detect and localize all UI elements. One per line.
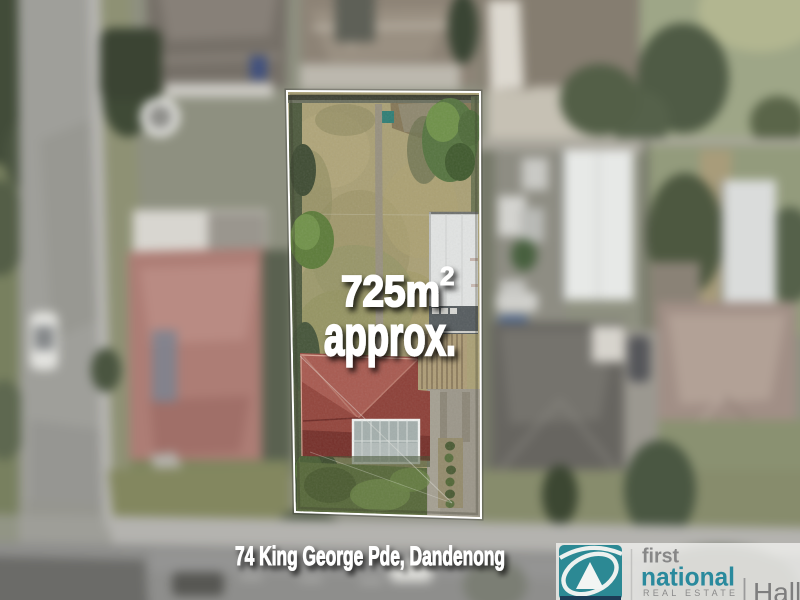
svg-text:approx.: approx.	[324, 304, 456, 367]
svg-text:REAL ESTATE: REAL ESTATE	[643, 588, 735, 598]
svg-text:74 King George Pde, Dandenong: 74 King George Pde, Dandenong	[235, 541, 505, 571]
svg-text:Hall: Hall	[753, 577, 800, 600]
svg-text:national: national	[641, 562, 735, 592]
svg-text:2: 2	[440, 261, 454, 291]
